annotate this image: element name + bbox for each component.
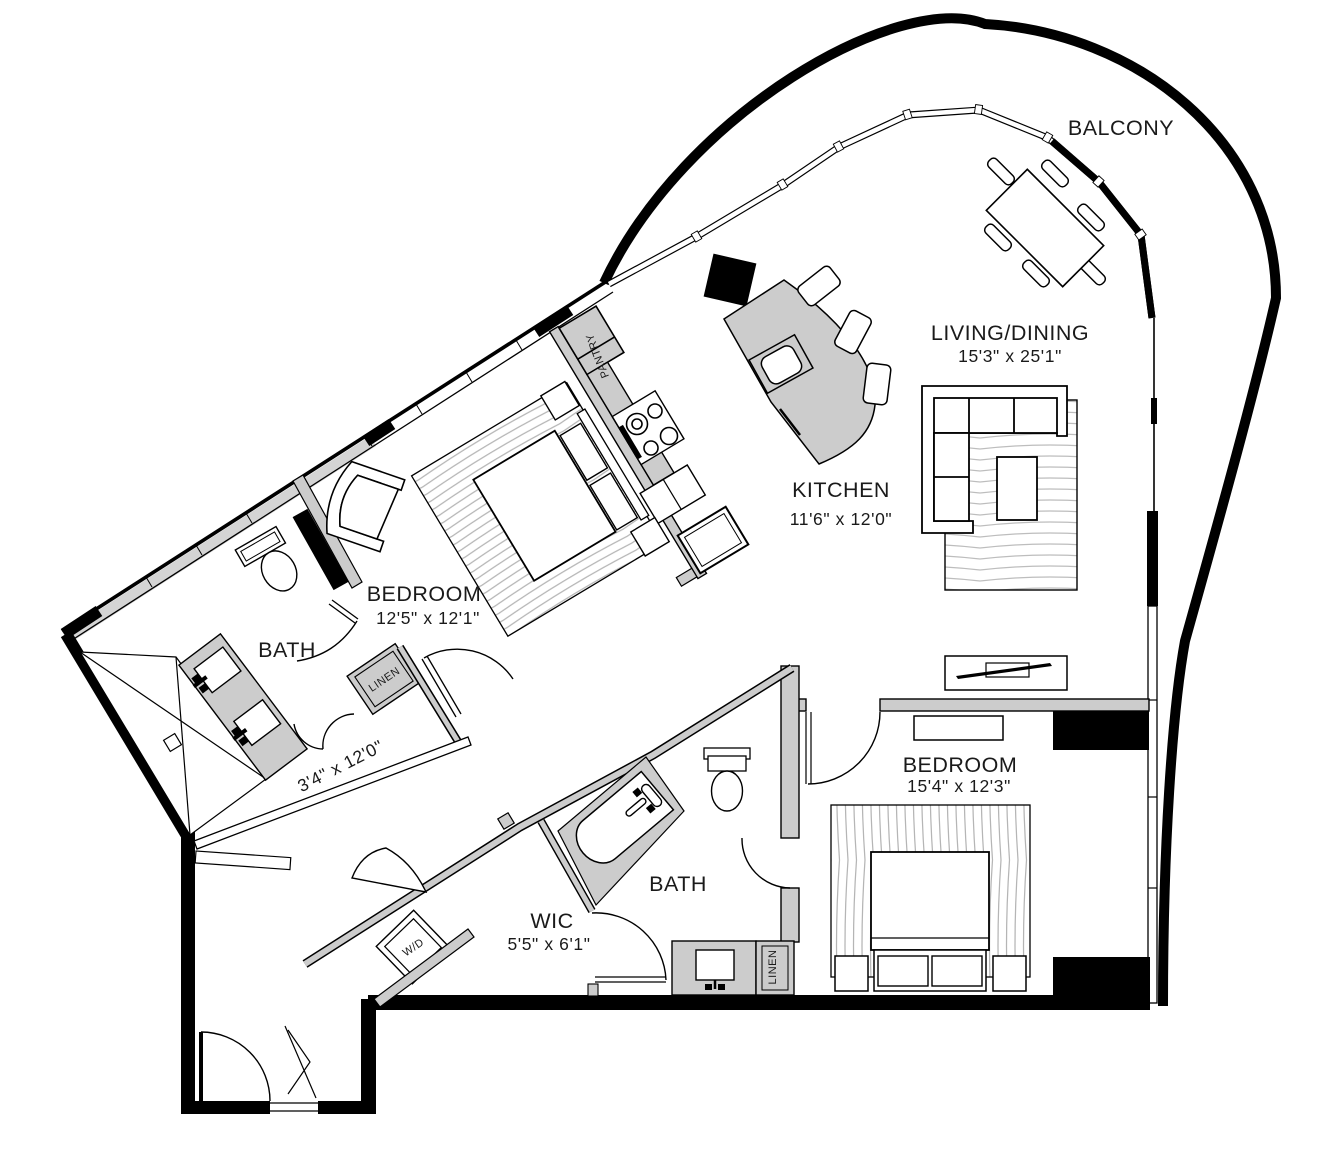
svg-text:BATH: BATH xyxy=(649,872,707,896)
svg-text:BALCONY: BALCONY xyxy=(1068,116,1174,140)
svg-text:12'5" x 12'1": 12'5" x 12'1" xyxy=(376,608,480,628)
svg-text:WIC: WIC xyxy=(530,909,573,933)
svg-text:KITCHEN: KITCHEN xyxy=(792,478,890,502)
svg-text:15'3" x 25'1": 15'3" x 25'1" xyxy=(958,346,1062,366)
svg-text:LIVING/DINING: LIVING/DINING xyxy=(931,321,1089,345)
svg-text:11'6" x 12'0": 11'6" x 12'0" xyxy=(790,509,892,529)
svg-text:LINEN: LINEN xyxy=(767,950,779,985)
svg-text:BEDROOM: BEDROOM xyxy=(367,582,482,606)
svg-text:15'4" x 12'3": 15'4" x 12'3" xyxy=(907,776,1011,796)
svg-text:BATH: BATH xyxy=(258,638,316,662)
svg-text:5'5" x 6'1": 5'5" x 6'1" xyxy=(507,934,590,954)
svg-text:BEDROOM: BEDROOM xyxy=(903,753,1018,777)
